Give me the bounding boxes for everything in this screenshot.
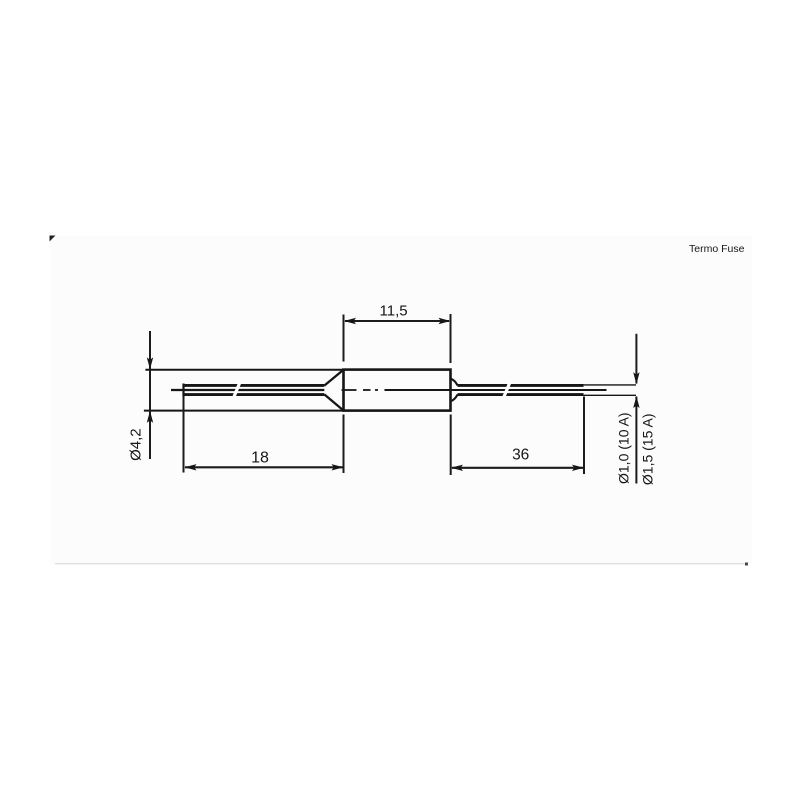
svg-text:36: 36 xyxy=(512,447,529,464)
svg-text:11,5: 11,5 xyxy=(380,303,408,320)
svg-text:Ø4,2: Ø4,2 xyxy=(128,428,145,461)
svg-text:18: 18 xyxy=(251,450,269,467)
svg-text:Ø1,5 (15 A): Ø1,5 (15 A) xyxy=(640,414,656,486)
svg-text:Ø1,0 (10 A): Ø1,0 (10 A) xyxy=(616,412,632,484)
svg-text:Termo Fuse: Termo Fuse xyxy=(689,243,745,255)
